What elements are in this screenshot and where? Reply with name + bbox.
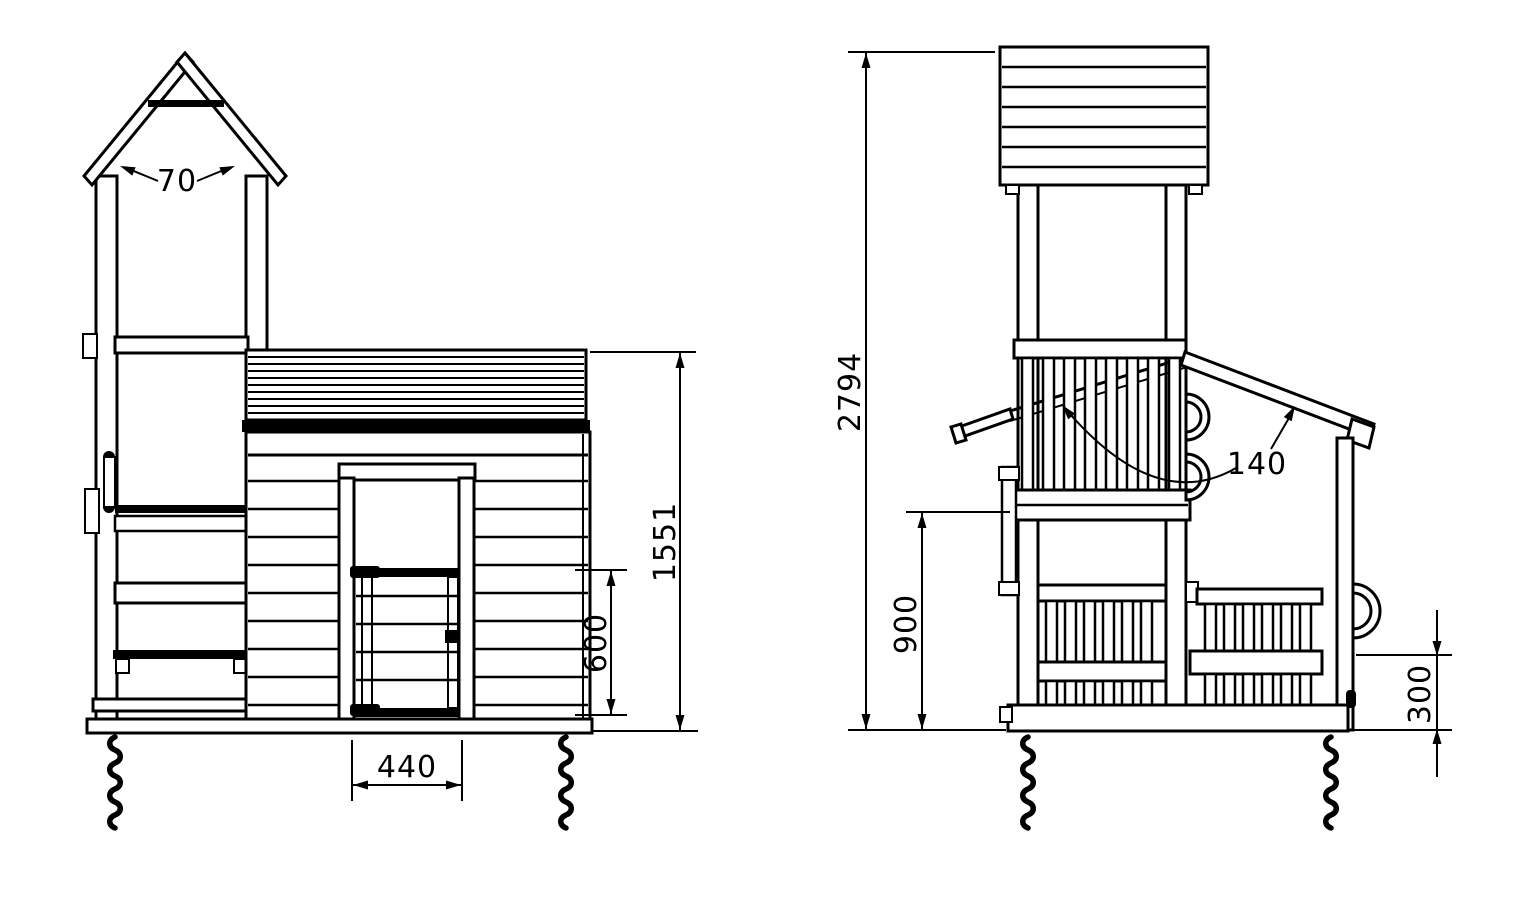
front-view: 70 1551 600 440 — [83, 53, 698, 828]
railing-slat — [1300, 674, 1311, 707]
arrowhead — [353, 781, 368, 790]
balustrade-slat — [1085, 358, 1096, 490]
tower-roof-side — [1000, 47, 1208, 194]
arrowhead — [676, 715, 685, 730]
side-view: 2794 900 140 300 — [833, 47, 1452, 828]
railing-top-rail — [1038, 585, 1166, 601]
railing-mid-rail — [1190, 651, 1322, 674]
balustrade — [1022, 358, 1180, 490]
railing-slat — [1262, 604, 1273, 651]
dimension-label: 600 — [579, 613, 614, 673]
base-tab — [1000, 707, 1012, 722]
tower-mid-rail — [115, 516, 248, 531]
ladder-rail — [1002, 467, 1016, 595]
railing-slat — [1243, 604, 1254, 651]
gate-latch — [445, 630, 460, 643]
dimension-platform-height: 900 — [889, 512, 1010, 730]
tower-collar-tie — [148, 100, 224, 107]
arrowhead — [118, 162, 135, 176]
arrowhead — [219, 162, 236, 176]
ground-screw — [1023, 737, 1034, 828]
grab-handle — [104, 457, 115, 507]
balustrade-slat — [1064, 358, 1075, 490]
door-jamb-right — [459, 478, 474, 723]
wall-bracket — [83, 334, 97, 358]
door-jamb-left — [339, 478, 354, 723]
railing-slat — [1224, 604, 1235, 651]
railing-left-section — [1038, 585, 1166, 707]
arrowhead — [918, 714, 927, 729]
ground-screw — [110, 737, 121, 828]
dimension-rail-height: 300 — [1356, 610, 1452, 777]
wall-bracket — [85, 489, 99, 533]
arrowhead — [1433, 641, 1442, 656]
sandbox-side-board — [93, 699, 247, 711]
ladder-bracket — [999, 467, 1019, 480]
balustrade-slat — [1169, 358, 1180, 490]
railing-top-rail — [1197, 589, 1322, 604]
railing-slat — [1103, 681, 1114, 707]
plank-bracket — [116, 659, 129, 673]
tower-floor-line — [115, 505, 248, 513]
facade-board — [1337, 438, 1353, 730]
railing-right-section — [1186, 582, 1322, 707]
sandbox-plank — [113, 650, 248, 659]
arrowhead — [918, 513, 927, 528]
railing-slat — [1205, 604, 1216, 651]
gate-hinge — [350, 704, 380, 716]
arrowhead — [607, 571, 616, 586]
railing-slat — [1065, 681, 1076, 707]
dimension-tower-rafter: 70 — [118, 162, 236, 199]
dimension-door-width: 440 — [352, 740, 462, 801]
dimension-label: 70 — [157, 164, 197, 199]
roof-bracket — [1006, 185, 1019, 194]
grab-ring — [1186, 394, 1209, 440]
ground-screw — [561, 737, 572, 828]
arrowhead — [1433, 729, 1442, 744]
railing-slat — [1122, 601, 1133, 662]
dimension-label: 300 — [1403, 664, 1438, 724]
railing-slat — [1281, 604, 1292, 651]
railing-slat — [1281, 674, 1292, 707]
railing-slat — [1084, 681, 1095, 707]
dimension-label: 2794 — [833, 352, 868, 432]
balustrade-slat — [1043, 358, 1054, 490]
base-beam — [1008, 705, 1348, 731]
dimension-label: 140 — [1227, 447, 1287, 482]
ladder-bracket — [999, 582, 1019, 595]
dimension-eave-height: 1551 — [590, 352, 698, 731]
balustrade-slat — [1106, 358, 1117, 490]
railing-slat — [1046, 681, 1057, 707]
railing-mid-rail — [1038, 662, 1166, 681]
railing-slat — [1205, 674, 1216, 707]
railing-slat — [1065, 601, 1076, 662]
railing-slat — [1046, 601, 1057, 662]
railing-slat — [1141, 601, 1152, 662]
roof-fascia — [242, 420, 590, 432]
drawing-canvas: 70 1551 600 440 — [0, 0, 1514, 914]
tower-low-rail — [115, 583, 248, 603]
arrowhead — [862, 714, 871, 729]
arrowhead — [446, 781, 461, 790]
arrowhead — [607, 699, 616, 714]
roof-right-slope — [1181, 352, 1374, 437]
railing-slat — [1224, 674, 1235, 707]
dimension-label: 900 — [889, 594, 924, 654]
balustrade-top-rail — [1014, 340, 1186, 358]
railing-slat — [1243, 674, 1254, 707]
arrowhead — [862, 53, 871, 68]
facade-handle — [1353, 584, 1380, 638]
railing-slat — [1300, 604, 1311, 651]
door — [339, 464, 475, 723]
playhouse-drawing: 70 1551 600 440 — [0, 0, 1514, 914]
balustrade-slat — [1022, 358, 1033, 490]
railing-slat — [1141, 681, 1152, 707]
door-lintel — [339, 464, 475, 480]
railing-slat — [1122, 681, 1133, 707]
railing-slat — [1084, 601, 1095, 662]
balustrade-slat — [1148, 358, 1159, 490]
railing-slat — [1103, 601, 1114, 662]
dimension-label: 440 — [377, 750, 437, 785]
railing-slat — [1262, 674, 1273, 707]
roof-bracket — [1189, 185, 1202, 194]
arrowhead — [676, 353, 685, 368]
roof-left-eave — [959, 409, 1013, 437]
gate-hinge — [350, 566, 380, 578]
dimension-label: 1551 — [648, 502, 683, 582]
tower-top-rail — [115, 337, 248, 353]
grab-ring — [1186, 454, 1209, 500]
base-beam — [87, 719, 592, 733]
ground-screw — [1326, 737, 1337, 828]
